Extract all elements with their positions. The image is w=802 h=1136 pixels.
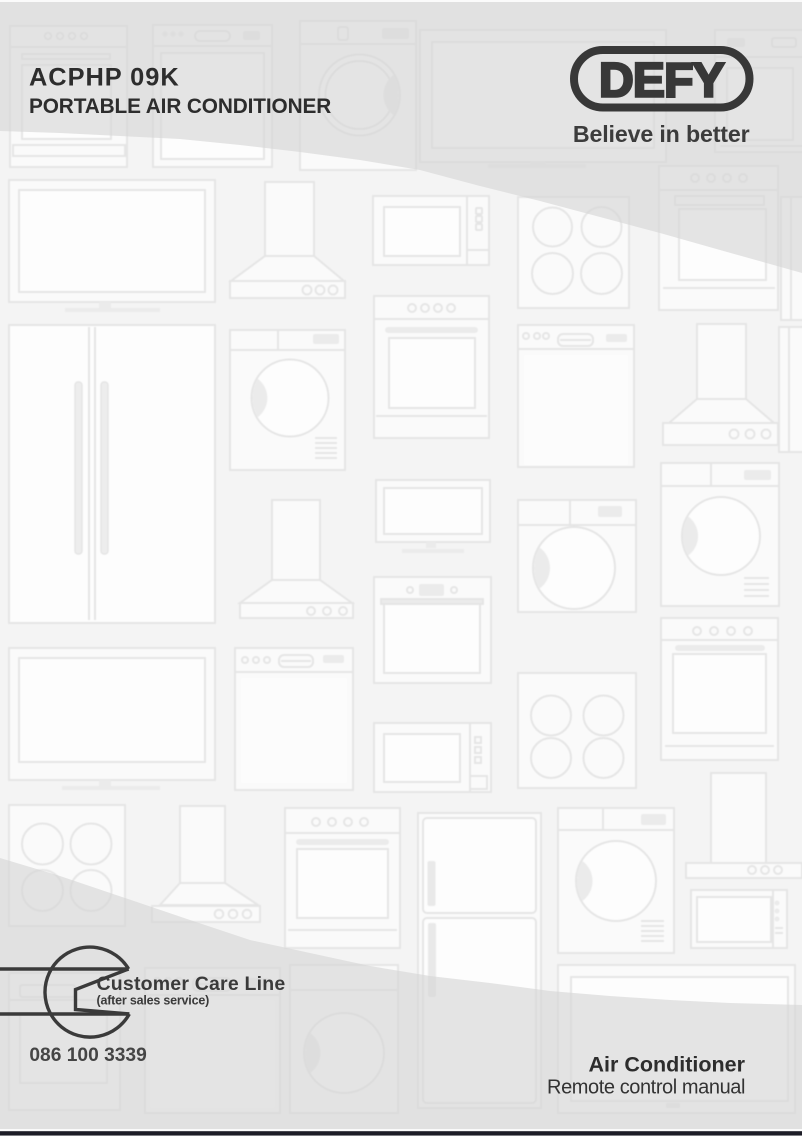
svg-text:DEFY: DEFY xyxy=(599,55,725,108)
svg-text:086 100 3339: 086 100 3339 xyxy=(29,1045,146,1066)
svg-text:PORTABLE AIR CONDITIONER: PORTABLE AIR CONDITIONER xyxy=(29,95,331,118)
svg-text:Believe in better: Believe in better xyxy=(573,121,750,147)
svg-text:Remote control manual: Remote control manual xyxy=(547,1077,745,1099)
svg-text:Air Conditioner: Air Conditioner xyxy=(589,1053,746,1077)
svg-text:Customer Care Line: Customer Care Line xyxy=(97,973,286,995)
svg-text:(after sales service): (after sales service) xyxy=(97,993,210,1007)
svg-text:ACPHP 09K: ACPHP 09K xyxy=(29,64,180,92)
